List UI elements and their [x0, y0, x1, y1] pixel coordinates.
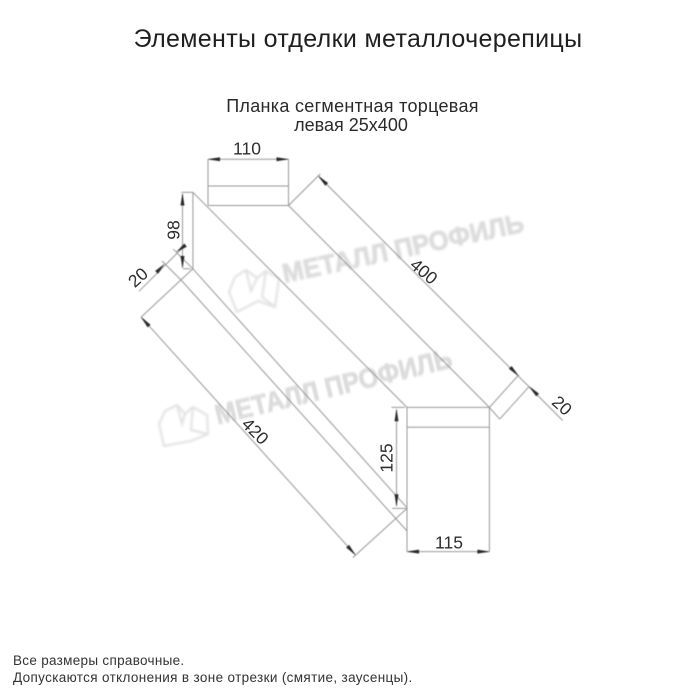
- svg-text:98: 98: [164, 220, 184, 239]
- svg-text:125: 125: [377, 443, 397, 472]
- svg-text:20: 20: [124, 263, 152, 291]
- svg-text:115: 115: [435, 532, 463, 552]
- svg-text:110: 110: [233, 139, 261, 159]
- svg-text:20: 20: [548, 392, 576, 420]
- svg-text:МЕТАЛЛ ПРОФИЛЬ: МЕТАЛЛ ПРОФИЛЬ: [279, 207, 526, 289]
